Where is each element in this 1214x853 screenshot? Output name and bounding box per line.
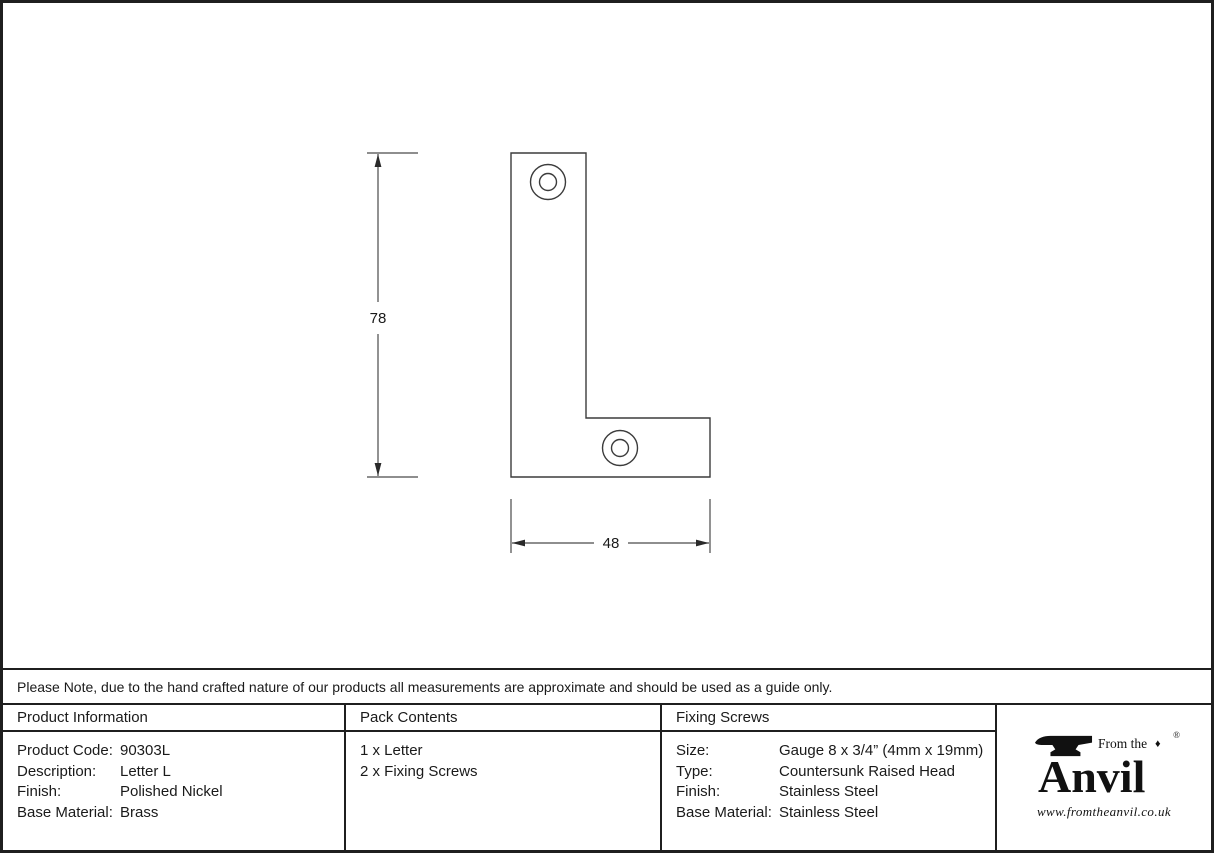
- fixing-screws-header: Fixing Screws: [662, 705, 995, 732]
- arrow-down-icon: [375, 463, 382, 476]
- pack-contents-cell: Pack Contents 1 x Letter 2 x Fixing Scre…: [346, 705, 662, 850]
- spec-label: Base Material:: [17, 803, 120, 824]
- width-dimension: 48: [511, 499, 710, 553]
- spec-label: Finish:: [676, 782, 779, 803]
- width-dim-label: 48: [603, 535, 620, 552]
- logo-cell: Anvil From the ♦ ® www.fromtheanvil.co.u…: [997, 705, 1211, 850]
- logo-tagline: From the: [1098, 736, 1147, 752]
- info-table: Product Information Product Code: 90303L…: [3, 705, 1211, 850]
- spec-label: Size:: [676, 741, 779, 762]
- registered-mark: ®: [1173, 730, 1180, 740]
- logo-brand-text: Anvil: [1038, 755, 1145, 799]
- arrow-up-icon: [375, 154, 382, 167]
- screw-hole-bottom: [603, 431, 638, 466]
- pack-item: 2 x Fixing Screws: [360, 762, 650, 783]
- height-dim-label: 78: [370, 310, 387, 327]
- logo-website: www.fromtheanvil.co.uk: [1037, 804, 1171, 820]
- anvil-logo: Anvil From the ♦ ® www.fromtheanvil.co.u…: [1037, 735, 1171, 820]
- spec-row-screw-finish: Finish: Stainless Steel: [676, 782, 985, 803]
- spec-row-type: Type: Countersunk Raised Head: [676, 762, 985, 783]
- pack-item: 1 x Letter: [360, 741, 650, 762]
- spec-label: Product Code:: [17, 741, 120, 762]
- spec-row-screw-base-material: Base Material: Stainless Steel: [676, 803, 985, 824]
- pack-contents-header: Pack Contents: [346, 705, 660, 732]
- spec-row-description: Description: Letter L: [17, 762, 334, 783]
- spec-label: Finish:: [17, 782, 120, 803]
- arrow-left-icon: [512, 540, 525, 547]
- spec-value: Gauge 8 x 3/4” (4mm x 19mm): [779, 741, 983, 762]
- note-bar: Please Note, due to the hand crafted nat…: [3, 668, 1211, 705]
- spec-row-finish: Finish: Polished Nickel: [17, 782, 334, 803]
- spec-value: Polished Nickel: [120, 782, 223, 803]
- spec-value: Stainless Steel: [779, 803, 878, 824]
- spec-value: Stainless Steel: [779, 782, 878, 803]
- spec-value: Brass: [120, 803, 158, 824]
- spec-value: Letter L: [120, 762, 171, 783]
- screw-hole-top: [531, 165, 566, 200]
- spec-row-product-code: Product Code: 90303L: [17, 741, 334, 762]
- anvil-icon: [1034, 732, 1094, 761]
- height-dimension: 78: [367, 153, 418, 477]
- product-information-header: Product Information: [3, 705, 344, 732]
- measurement-note: Please Note, due to the hand crafted nat…: [17, 679, 832, 695]
- spec-value: 90303L: [120, 741, 170, 762]
- spec-label: Base Material:: [676, 803, 779, 824]
- fixing-screws-cell: Fixing Screws Size: Gauge 8 x 3/4” (4mm …: [662, 705, 997, 850]
- product-information-cell: Product Information Product Code: 90303L…: [3, 705, 346, 850]
- arrow-right-icon: [696, 540, 709, 547]
- diamond-i-dot-icon: ♦: [1155, 738, 1161, 750]
- spec-value: Countersunk Raised Head: [779, 762, 955, 783]
- spec-row-base-material: Base Material: Brass: [17, 803, 334, 824]
- technical-drawing: 78 48: [3, 3, 1211, 666]
- spec-sheet-page: 78 48 Please Note, due to the hand craft…: [0, 0, 1214, 853]
- letter-l-outline: [511, 153, 710, 477]
- spec-row-size: Size: Gauge 8 x 3/4” (4mm x 19mm): [676, 741, 985, 762]
- spec-label: Type:: [676, 762, 779, 783]
- spec-label: Description:: [17, 762, 120, 783]
